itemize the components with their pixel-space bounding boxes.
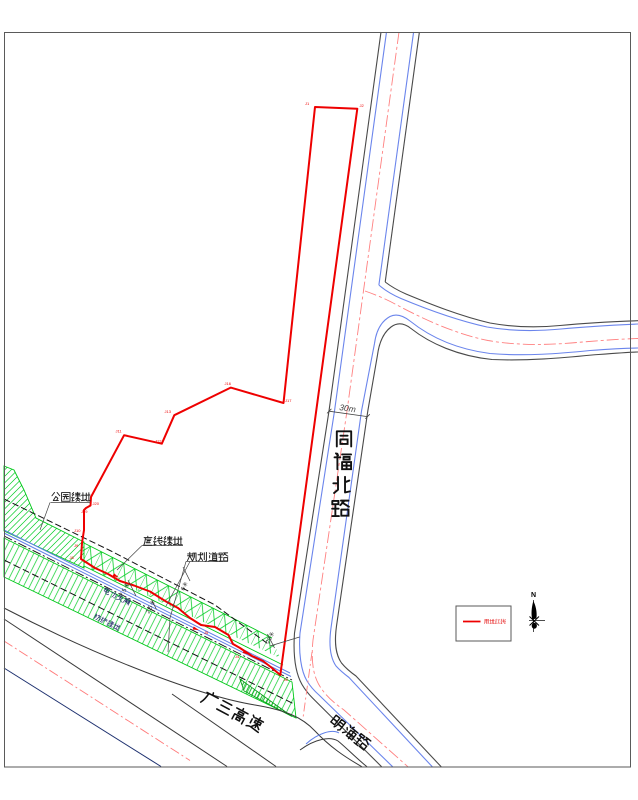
svg-text:N: N — [531, 592, 536, 599]
svg-text:J17: J17 — [285, 398, 292, 403]
svg-text:J20: J20 — [93, 501, 100, 506]
svg-text:J10: J10 — [74, 528, 81, 533]
svg-text:J16: J16 — [225, 381, 232, 386]
svg-text:J12: J12 — [155, 439, 162, 444]
svg-text:J13: J13 — [165, 409, 172, 414]
svg-text:J11: J11 — [116, 429, 123, 434]
svg-text:J19: J19 — [81, 509, 88, 514]
